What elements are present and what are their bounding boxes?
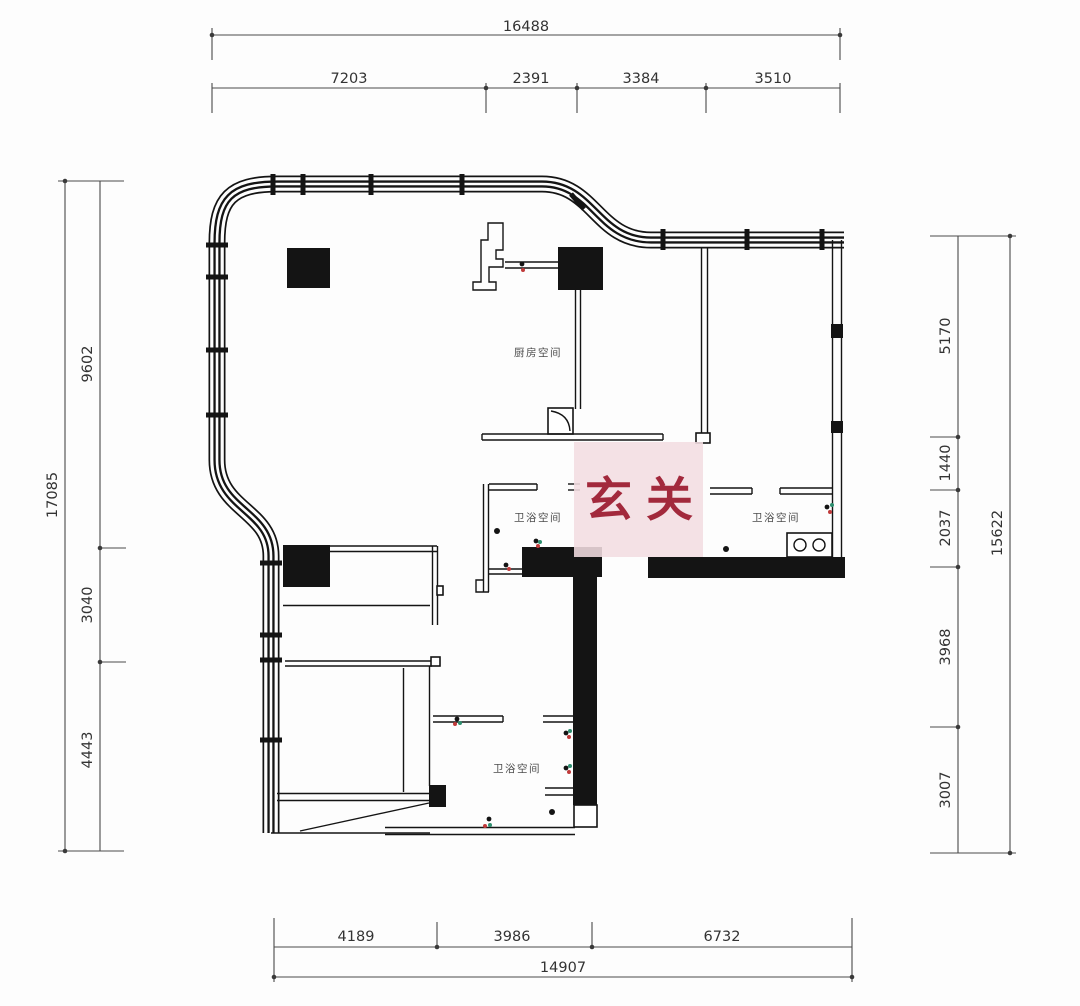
dim-left-total: 17085 — [45, 472, 61, 518]
bathroom-bottom: 卫浴空间 — [385, 716, 577, 835]
bathroom-bottom-label: 卫浴空间 — [493, 762, 541, 775]
dim-bottom-seg-2: 3986 — [494, 929, 531, 945]
wall-bar — [573, 577, 597, 805]
column-top-center — [558, 247, 603, 290]
floor-plan-svg: 厨房空间 卫浴空间 卫浴空间 — [0, 0, 1080, 1006]
entry-label: 玄关 — [585, 473, 707, 528]
dim-bottom-seg-3: 6732 — [704, 929, 741, 945]
dim-bottom: 4189 3986 6732 14907 — [272, 918, 855, 982]
dim-left: 17085 9602 3040 4443 — [45, 179, 126, 854]
bathroom-middle-label: 卫浴空间 — [514, 511, 562, 524]
wall-end-box — [574, 805, 597, 827]
dim-right-seg-5: 3007 — [938, 772, 954, 809]
wall-hook — [437, 586, 443, 595]
dim-right-seg-3: 2037 — [938, 510, 954, 547]
dim-bottom-seg-1: 4189 — [338, 929, 375, 945]
dim-right-seg-2: 1440 — [938, 445, 954, 482]
entry-highlight: 玄关 — [574, 442, 707, 557]
dim-bottom-total: 14907 — [540, 960, 586, 976]
dim-right-total: 15622 — [990, 510, 1006, 556]
thick-wall-right-bottom — [648, 557, 845, 578]
bedroom-left — [271, 546, 446, 833]
bathroom-right-label: 卫浴空间 — [752, 511, 800, 524]
dim-left-seg-1: 9602 — [80, 346, 96, 383]
floor-plan-canvas: 厨房空间 卫浴空间 卫浴空间 — [0, 0, 1080, 1006]
plumbing-chase — [473, 223, 503, 290]
dim-top: 16488 7203 2391 3384 3510 — [210, 19, 843, 113]
central-wall — [522, 547, 602, 827]
dim-left-seg-3: 4443 — [80, 732, 96, 769]
kitchen-label: 厨房空间 — [514, 346, 562, 359]
dim-right: 5170 1440 2037 3968 3007 15622 — [930, 234, 1016, 856]
column-bottom — [429, 785, 446, 807]
dim-right-seg-1: 5170 — [938, 318, 954, 355]
wall-foot — [696, 433, 710, 443]
wall-end-block — [431, 657, 440, 666]
dim-left-seg-2: 3040 — [80, 587, 96, 624]
dim-top-total: 16488 — [503, 19, 549, 35]
dim-top-seg-4: 3510 — [755, 71, 792, 87]
dim-top-seg-2: 2391 — [513, 71, 550, 87]
dim-top-seg-3: 3384 — [623, 71, 660, 87]
right-walls — [696, 240, 842, 557]
dim-right-seg-4: 3968 — [938, 629, 954, 666]
dim-top-seg-1: 7203 — [331, 71, 368, 87]
column-top-left — [287, 248, 330, 288]
column-mid-left — [283, 545, 330, 587]
